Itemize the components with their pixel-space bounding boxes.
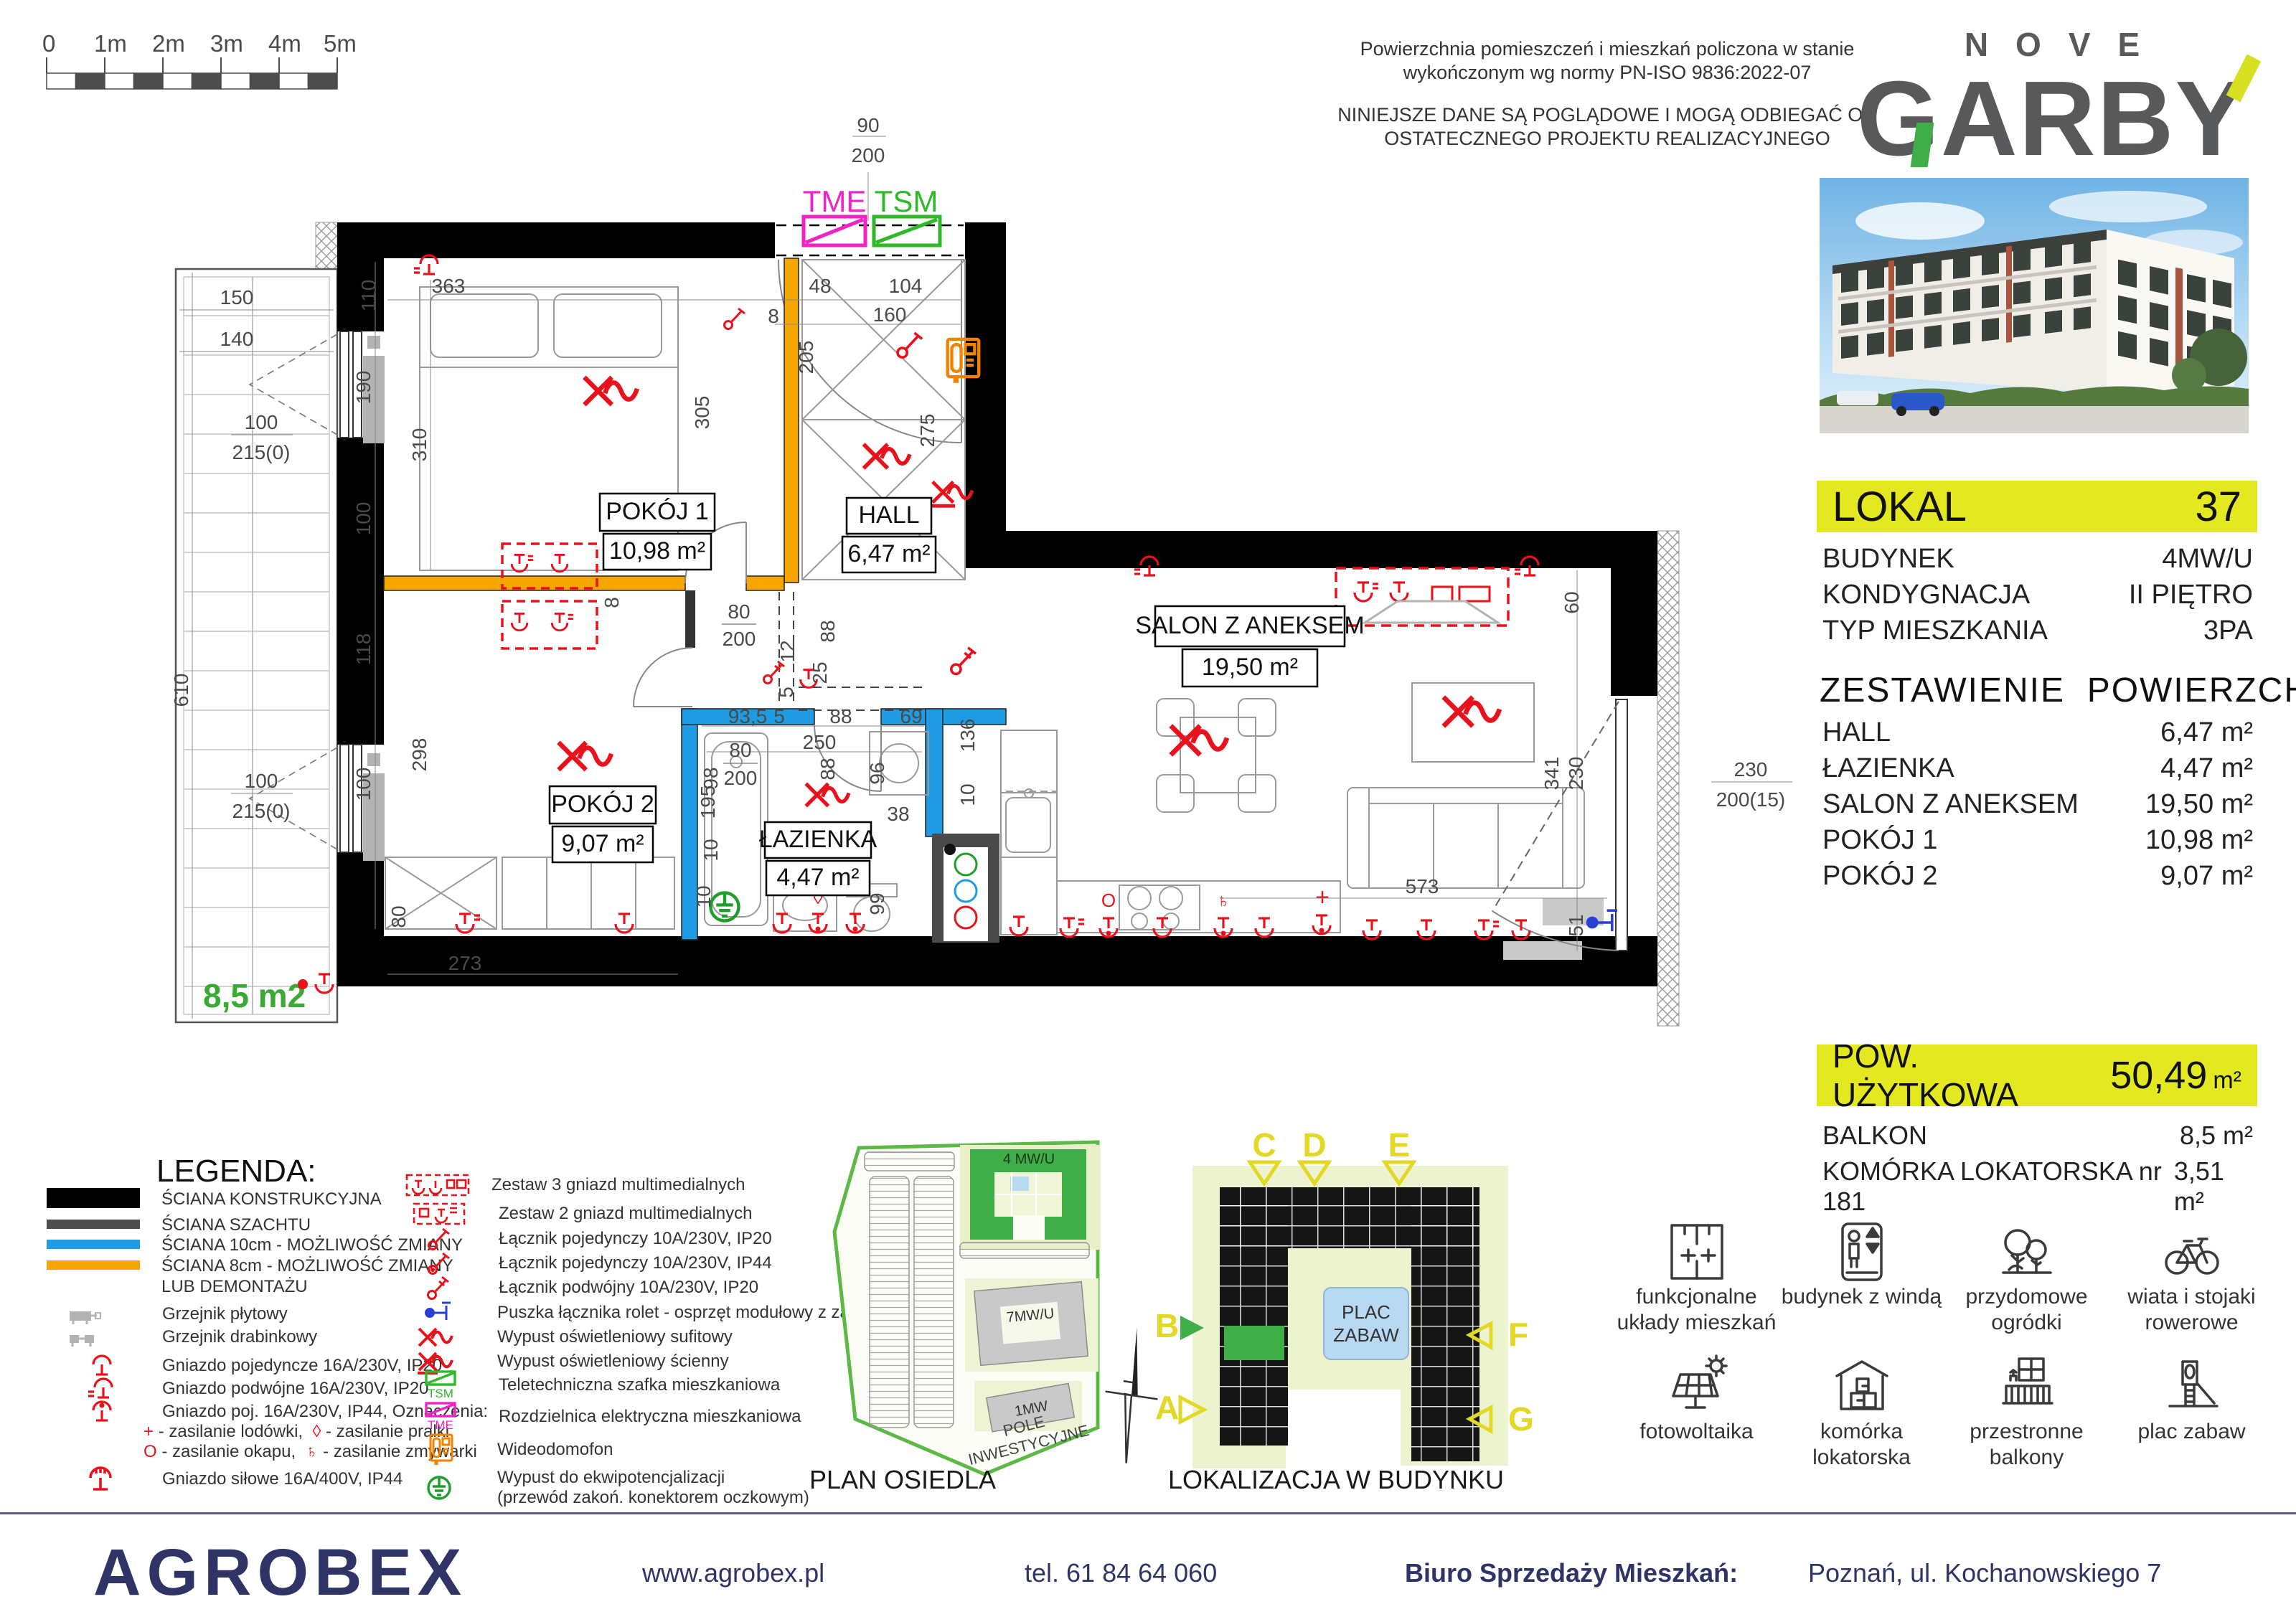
ozn-text: - zasilanie okapu, <box>161 1442 296 1461</box>
legend-item-label: Zestaw 2 gniazd multimedialnych <box>499 1204 753 1224</box>
brand-top: NOVE <box>1837 25 2267 64</box>
legend-item-label: Grzejnik drabinkowy <box>162 1327 317 1347</box>
legend-switch-double: Łącznik podwójny 10A/230V, IP20 <box>423 1274 758 1301</box>
extra-value: 3,51 m² <box>2174 1156 2253 1217</box>
feature-storage: komórka lokatorska <box>1781 1354 1942 1471</box>
unit-row-kondygnacja: KONDYGNACJAII PIĘTRO <box>1822 580 2253 610</box>
shaft <box>933 834 999 942</box>
dimension-label: 150 <box>220 286 254 308</box>
dimension-label: 104 <box>889 275 923 297</box>
area-value: 4,47 m² <box>2160 753 2253 784</box>
legend-item-label: Teletechniczna szafka mieszkaniowa <box>499 1375 780 1395</box>
dimension-label: 200 <box>724 767 758 789</box>
disclaimer-line: wykończonym wg normy PN-ISO 9836:2022-07 <box>1327 61 1887 85</box>
area-label: HALL <box>1822 717 1891 748</box>
brand-logo: NOVE GARBY <box>1837 25 2267 173</box>
legend-item-label: Grzejnik płytowy <box>162 1304 288 1324</box>
radiator-plate-icon <box>68 1303 101 1326</box>
feature-label: funkcjonalne układy mieszkań <box>1616 1284 1777 1336</box>
dimension-label: 298 <box>408 738 430 772</box>
legend-wall-shaft <box>47 1220 140 1229</box>
footer-address: Poznań, ul. Kochanowskiego 7 <box>1808 1558 2161 1588</box>
legend-tsm: TSM Teletechniczna szafka mieszkaniowa <box>425 1370 780 1400</box>
dimension-label: 200 <box>723 628 756 650</box>
tsm-plan-label: TSM <box>875 184 938 218</box>
dimension-label: 10 <box>700 839 722 861</box>
dimension-label: 200(15) <box>1716 788 1786 811</box>
unit-row-budynek: BUDYNEK4MW/U <box>1822 544 2253 575</box>
dimension-label: 205 <box>795 341 817 374</box>
room-area-pokoj1: 10,98 m² <box>609 537 705 565</box>
area-value: 10,98 m² <box>2145 825 2253 856</box>
tme-label: TME <box>428 1418 453 1432</box>
playground-box: PLAC ZABAW <box>1324 1288 1408 1359</box>
usable-label: POW. UŻYTKOWA <box>1832 1037 2110 1114</box>
footer-divider <box>0 1512 2296 1514</box>
dimension-label: 200 <box>852 144 885 166</box>
room-area-salon: 19,50 m² <box>1202 654 1298 681</box>
feature-label: komórka lokatorska <box>1781 1419 1942 1471</box>
ozn-symbol: ◊ <box>312 1422 321 1441</box>
socket-power-icon <box>86 1465 118 1494</box>
usable-area-band: POW. UŻYTKOWA 50,49 m² <box>1817 1045 2257 1106</box>
area-row: SALON Z ANEKSEM19,50 m² <box>1822 789 2253 820</box>
legend-item-label: Zestaw 3 gniazd multimedialnych <box>491 1175 745 1195</box>
legend-title: LEGENDA: <box>156 1154 316 1189</box>
switch-single-ip44-icon <box>423 1250 453 1277</box>
brand-letter: R <box>2019 65 2097 173</box>
footer-website[interactable]: www.agrobex.pl <box>642 1558 824 1588</box>
switch-single-icon <box>423 1225 453 1253</box>
mini-maps: 4 MW/U 7MW/U 1MW POLE INWESTYCYJNE PLAN … <box>761 1119 1550 1507</box>
area-value: 6,47 m² <box>2160 717 2253 748</box>
area-value: 9,07 m² <box>2160 861 2253 892</box>
tme-icon: TME <box>425 1402 458 1432</box>
footer-company: AGROBEX <box>93 1535 467 1611</box>
usable-unit: m² <box>2213 1067 2241 1095</box>
room-area-pokoj2: 9,07 m² <box>561 830 644 857</box>
bicycle-icon <box>2160 1220 2224 1284</box>
area-value: 19,50 m² <box>2145 789 2253 820</box>
dimension-label: 10 <box>692 885 715 907</box>
dimension-label: 110 <box>357 280 380 312</box>
feature-bikes: wiata i stojaki rowerowe <box>2111 1220 2272 1336</box>
marker-d: D <box>1302 1126 1326 1164</box>
unit-row-value: 3PA <box>2203 616 2253 646</box>
building-7mwu: 7MW/U <box>974 1282 1088 1366</box>
legend-item-label: Łącznik pojedynczy 10A/230V, IP44 <box>499 1253 772 1273</box>
extra-label: KOMÓRKA LOKATORSKA nr 181 <box>1822 1156 2174 1217</box>
ozn-symbol: O <box>143 1442 157 1461</box>
playground-icon <box>2160 1354 2224 1419</box>
marker-e: E <box>1388 1126 1411 1164</box>
disclaimer-line: Powierzchnia pomieszczeń i mieszkań poli… <box>1327 37 1887 61</box>
unit-row-value: II PIĘTRO <box>2129 580 2253 610</box>
dimension-label: 60 <box>1561 591 1583 613</box>
tsm-label: TSM <box>428 1387 453 1400</box>
dimension-label: 48 <box>809 275 831 297</box>
legend-wall-label: ŚCIANA KONSTRUKCYJNA <box>161 1189 382 1210</box>
feature-gardens: przydomowe ogródki <box>1946 1220 2107 1336</box>
dimension-label: 12 <box>776 640 799 662</box>
scale-label: 1m <box>94 30 127 57</box>
dimension-label: 305 <box>691 396 713 430</box>
marker-b: B <box>1155 1307 1179 1344</box>
dimension-label: 160 <box>873 303 907 326</box>
dimension-label: 93,5 <box>728 705 768 727</box>
locator-caption: LOKALIZACJA W BUDYNKU <box>1168 1465 1504 1494</box>
area-row: POKÓJ 110,98 m² <box>1822 825 2253 856</box>
marker-f: F <box>1508 1316 1528 1353</box>
feature-label: fotowoltaika <box>1639 1419 1753 1445</box>
tme-tsm-cabinets: TME TSM <box>803 184 940 245</box>
videophone-icon <box>426 1433 458 1466</box>
legend-oznaczenia-line1: + - zasilanie lodówki, ◊ - zasilanie pra… <box>143 1422 449 1442</box>
footer-office-label: Biuro Sprzedaży Mieszkań: <box>1405 1558 1738 1588</box>
unit-row-label: BUDYNEK <box>1822 544 1954 575</box>
multimedia3-icon <box>405 1171 471 1199</box>
storage-icon <box>1830 1354 1894 1419</box>
feature-label: wiata i stojaki rowerowe <box>2111 1284 2272 1336</box>
dimension-label: 118 <box>352 633 375 666</box>
feature-photovoltaics: fotowoltaika <box>1616 1354 1777 1445</box>
room-name-lazienka: ŁAZIENKA <box>759 826 878 853</box>
marker-a: A <box>1155 1389 1179 1426</box>
svg-text:ZABAW: ZABAW <box>1333 1324 1399 1346</box>
feature-elevator: budynek z windą <box>1781 1220 1942 1310</box>
elevator-icon <box>1830 1220 1894 1284</box>
ozn-text: - zasilanie lodówki, <box>159 1422 303 1441</box>
feature-balconies: przestronne balkony <box>1946 1354 2107 1471</box>
footer-phone[interactable]: tel. 61 84 64 060 <box>1025 1558 1217 1588</box>
room-area-hall: 6,47 m² <box>847 540 930 567</box>
room-name-salon: SALON Z ANEKSEM <box>1135 612 1364 639</box>
areas-heading: ZESTAWIENIE POWIERZCHNI <box>1820 671 2296 710</box>
dimension-label: 10 <box>956 783 979 806</box>
dimension-label: 195 <box>697 786 719 819</box>
balcony-icon <box>1995 1354 2059 1419</box>
legend-item-label: Gniazdo podwójne 16A/230V, IP20 <box>162 1379 428 1399</box>
balcony: 8,5 m2 <box>176 269 337 1022</box>
dimension-label: 96 <box>866 762 888 784</box>
legend-item-label: Gniazdo siłowe 16A/400V, IP44 <box>162 1469 403 1489</box>
room-name-pokoj2: POKÓJ 2 <box>551 791 654 818</box>
dimension-label: 100 <box>245 411 278 433</box>
ozn-symbol: ♄ <box>305 1442 318 1461</box>
legend-socket-power: Gniazdo siłowe 16A/400V, IP44 <box>86 1465 403 1494</box>
solar-icon <box>1665 1354 1729 1419</box>
legend-wall-label: LUB DEMONTAŻU <box>161 1277 308 1297</box>
dimension-label: 90 <box>857 114 879 136</box>
dimension-label: 610 <box>170 674 192 707</box>
multimedia2-icon <box>413 1199 467 1228</box>
dimension-label: 80 <box>728 600 750 623</box>
legend-switch-ip20: Łącznik pojedynczy 10A/230V, IP20 <box>423 1225 772 1253</box>
room-name-pokoj1: POKÓJ 1 <box>606 498 709 525</box>
extra-value: 8,5 m² <box>2180 1121 2253 1151</box>
legend-tme: TME Rozdzielnica elektryczna mieszkaniow… <box>425 1402 801 1432</box>
socket-mark-fridge: + <box>1315 884 1330 911</box>
ozn-symbol: + <box>143 1422 154 1441</box>
brand-letter: A <box>1941 65 2019 173</box>
legend-wall-structural <box>47 1188 140 1208</box>
site-plan: 4 MW/U 7MW/U 1MW POLE INWESTYCYJNE PLAN … <box>809 1142 1101 1494</box>
dimension-label: 230 <box>1734 758 1768 781</box>
switch-double-icon <box>423 1274 453 1301</box>
socket-ip44-icon <box>86 1397 118 1426</box>
dimension-label: 215(0) <box>232 800 291 822</box>
tsm-icon: TSM <box>425 1370 458 1400</box>
area-label: ŁAZIENKA <box>1822 753 1954 784</box>
scale-bar: 0 1m 2m 3m 4m 5m <box>39 29 355 108</box>
flyer-page: 0 1m 2m 3m 4m 5m Powierzchnia pomieszcze… <box>0 0 2296 1622</box>
dimension-label: 8 <box>601 597 623 608</box>
dimension-label: 363 <box>432 275 466 297</box>
balcony-area-label: 8,5 m2 <box>203 977 306 1014</box>
dimension-label: 100 <box>352 502 375 536</box>
room-name-hall: HALL <box>858 501 919 529</box>
dimension-label: 140 <box>220 328 254 350</box>
dimension-label: 88 <box>817 620 839 642</box>
building-locator: PLAC ZABAW C D E F G B A LOKALIZ <box>1155 1126 1534 1494</box>
unit-row-label: KONDYGNACJA <box>1822 580 2030 610</box>
scale-label: 3m <box>210 30 243 57</box>
scale-label: 0 <box>42 30 55 57</box>
feature-label: plac zabaw <box>2137 1419 2245 1445</box>
socket-mark-hood: O <box>1101 890 1116 911</box>
radiator-ladder-icon <box>68 1326 101 1349</box>
legend-wall-label: ŚCIANA 10cm - MOŻLIWOŚĆ ZMIANY <box>161 1235 463 1255</box>
feature-floorplans: funkcjonalne układy mieszkań <box>1616 1220 1777 1336</box>
usable-value: 50,49 <box>2110 1053 2207 1098</box>
dimension-label: 25 <box>809 661 831 684</box>
dimension-label: 5 <box>775 687 797 698</box>
legend-item-label: Łącznik podwójny 10A/230V, IP20 <box>499 1278 758 1298</box>
legend-item-label: Gniazdo pojedyncze 16A/230V, IP20 <box>162 1356 442 1376</box>
scale-label: 4m <box>268 30 301 57</box>
legend-item-label: Wypust oświetleniowy ścienny <box>497 1352 729 1372</box>
highlighted-unit <box>1224 1326 1284 1360</box>
legend-radiator-ladder: Grzejnik drabinkowy <box>68 1326 317 1349</box>
dimension-label: 88 <box>817 758 839 780</box>
building-photo <box>1820 178 2249 433</box>
room-area-lazienka: 4,47 m² <box>776 864 859 891</box>
dimension-label: 100 <box>352 768 375 801</box>
dimension-label: 190 <box>352 371 375 405</box>
legend-item-label: Wypust oświetleniowy sufitowy <box>497 1327 733 1347</box>
partition-wall <box>685 590 695 648</box>
legend-item-label: Łącznik pojedynczy 10A/230V, IP20 <box>499 1229 772 1249</box>
feature-label: budynek z windą <box>1782 1284 1942 1310</box>
legend-switch-ip44: Łącznik pojedynczy 10A/230V, IP44 <box>423 1250 772 1277</box>
legend-multimedia2: Zestaw 2 gniazd multimedialnych <box>413 1199 753 1228</box>
dimension-label: 573 <box>1406 875 1439 897</box>
dashed-partition <box>779 592 924 710</box>
dimension-label: 100 <box>245 770 278 792</box>
legend-wall-8cm <box>47 1260 140 1270</box>
area-label: POKÓJ 2 <box>1822 861 1938 892</box>
marker-c: C <box>1252 1126 1276 1164</box>
brand-letter-g: G <box>1857 65 1941 173</box>
legend-wall-10cm <box>47 1240 140 1249</box>
dimension-label: 38 <box>887 803 909 825</box>
dimension-label: 136 <box>956 719 979 753</box>
unit-row-value: 4MW/U <box>2162 544 2253 575</box>
svg-text:PLAC: PLAC <box>1342 1301 1391 1323</box>
legend-videophone: Wideodomofon <box>426 1433 613 1466</box>
legend-item-label: Rozdzielnica elektryczna mieszkaniowa <box>499 1407 801 1427</box>
range-hood <box>1365 601 1498 623</box>
legend-radiator-plate: Grzejnik płytowy <box>68 1303 288 1326</box>
dimension-label: 51 <box>1565 914 1587 936</box>
dimension-label: 341 <box>1540 757 1563 791</box>
trees-icon <box>1995 1220 2059 1284</box>
dimension-label: 80 <box>729 739 751 761</box>
dimension-label: 310 <box>408 428 430 462</box>
legend-item-label: Wideodomofon <box>497 1440 613 1460</box>
legend-equipotential: Wypust do ekwipotencjalizacji (przewód z… <box>425 1468 809 1508</box>
dimension-label: 8 <box>768 305 779 327</box>
lokal-band: LOKAL 37 <box>1817 481 2257 532</box>
lokal-number: 37 <box>2195 483 2241 531</box>
dimension-label: 215(0) <box>232 441 291 463</box>
area-row: ŁAZIENKA4,47 m² <box>1822 753 2253 784</box>
extra-label: BALKON <box>1822 1121 1927 1151</box>
dimension-label: 275 <box>916 414 938 448</box>
unit-row-label: TYP MIESZKANIA <box>1822 616 2048 646</box>
dimension-label: 273 <box>448 952 482 974</box>
extra-row-balkon: BALKON8,5 m² <box>1822 1121 2253 1151</box>
building-4mwu-label: 4 MW/U <box>1003 1151 1055 1167</box>
unit-row-typ: TYP MIESZKANIA3PA <box>1822 616 2253 646</box>
feature-label: przydomowe ogródki <box>1946 1284 2107 1336</box>
extra-row-komorka: KOMÓRKA LOKATORSKA nr 1813,51 m² <box>1822 1156 2253 1217</box>
dimension-label: 250 <box>803 731 837 753</box>
feature-playground: plac zabaw <box>2111 1354 2272 1445</box>
feature-label: przestronne balkony <box>1946 1419 2107 1471</box>
dimension-label: 80 <box>387 905 410 928</box>
building-4mwu: 4 MW/U <box>970 1149 1086 1240</box>
marker-g: G <box>1508 1400 1534 1438</box>
brand-letter: B <box>2097 65 2175 173</box>
lokal-label: LOKAL <box>1832 483 1967 531</box>
legend-multimedia3: Zestaw 3 gniazd multimedialnych <box>405 1171 745 1199</box>
dimension-label: 5 <box>773 705 785 727</box>
scale-label: 2m <box>152 30 185 57</box>
scale-label: 5m <box>324 30 355 57</box>
dimension-label: 88 <box>829 705 852 727</box>
tme-plan-label: TME <box>803 184 867 218</box>
wall-8cm <box>384 258 799 590</box>
dimension-label: 69 <box>900 705 922 727</box>
equipotential-icon <box>425 1474 456 1502</box>
floorplan-icon <box>1665 1220 1729 1284</box>
area-row: POKÓJ 29,07 m² <box>1822 861 2253 892</box>
area-label: SALON Z ANEKSEM <box>1822 789 2079 820</box>
area-label: POKÓJ 1 <box>1822 825 1938 856</box>
brand-letter-y: Y <box>2175 65 2248 173</box>
entrance <box>776 225 964 443</box>
legend-wall-label: ŚCIANA SZACHTU <box>161 1215 311 1235</box>
socket-mark-dishwasher: ♄ <box>1216 890 1231 911</box>
floor-plan: 8,5 m2 <box>165 100 1794 1055</box>
dimension-label: 230 <box>1565 757 1587 791</box>
legend-wall-label: ŚCIANA 8cm - MOŻLIWOŚĆ ZMIANY <box>161 1256 453 1276</box>
site-plan-caption: PLAN OSIEDLA <box>809 1465 996 1494</box>
area-row: HALL6,47 m² <box>1822 717 2253 748</box>
